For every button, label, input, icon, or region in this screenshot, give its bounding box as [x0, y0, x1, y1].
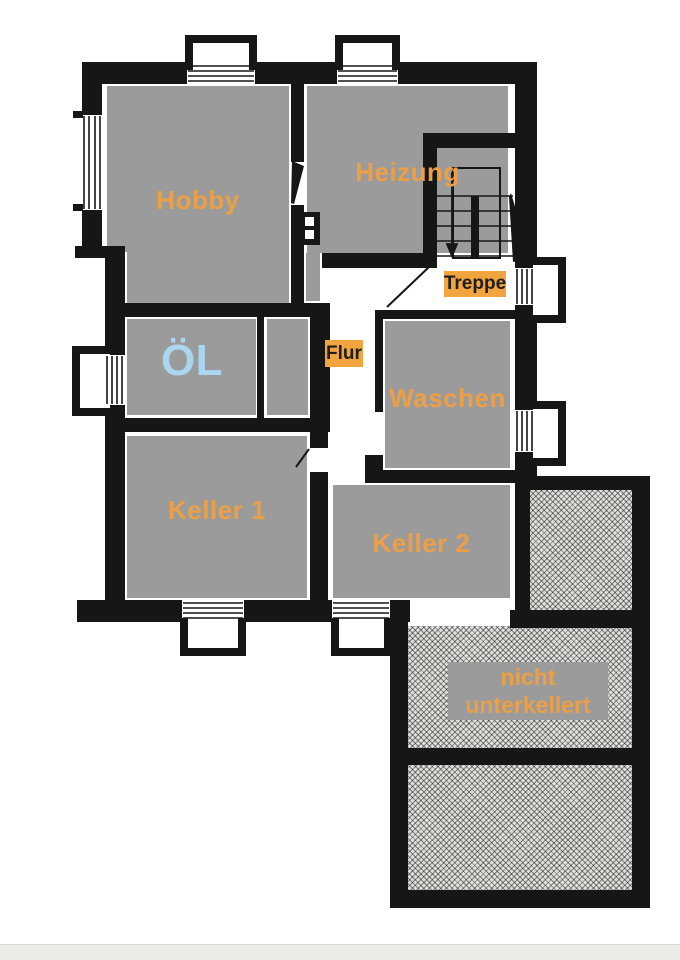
wall-waschen-bottom [380, 470, 530, 483]
wall-hobby-heizung-1 [291, 84, 304, 162]
hatch-area-bottom [408, 765, 632, 890]
window-bay-bottom-2 [331, 618, 392, 656]
window-glazing-bottom-2 [333, 603, 389, 618]
wall-oel-keller1 [105, 418, 330, 432]
scan-footer-bar [0, 944, 680, 960]
wall-tick-2 [73, 204, 83, 211]
window-bay-top-1 [185, 35, 257, 70]
room-hobby [107, 86, 289, 252]
window-glazing-left-hobby [84, 116, 100, 209]
wall-top-2 [255, 62, 337, 84]
room-hobby-lower [127, 250, 289, 303]
room-heizung-door-strip [306, 253, 320, 301]
wall-hatch-divider-2 [390, 748, 650, 765]
wall-left-upper-1 [82, 62, 102, 115]
wall-stairwell-top [423, 133, 515, 148]
wall-oel-divider [257, 317, 264, 418]
room-label-oel: ÖL [127, 336, 257, 386]
wall-oel-right [310, 303, 330, 432]
window-glazing-right-1 [517, 269, 532, 304]
wall-keller2-jog [365, 455, 380, 483]
window-bay-top-2 [335, 35, 400, 70]
window-bay-left [72, 346, 110, 416]
hatch-area-top-square [530, 490, 632, 610]
nicht-unterkellert-text: nicht unterkellert [463, 663, 593, 719]
wall-heizung-bottom [322, 253, 437, 268]
wall-building-right-lower [515, 480, 530, 626]
wall-waschen-left-1 [375, 310, 383, 412]
chimney-flue-1 [305, 217, 314, 226]
room-label-waschen: Waschen [385, 383, 510, 414]
wall-oel-top [105, 303, 330, 317]
wall-tick-1 [73, 111, 83, 118]
wall-keller1-right-1 [310, 432, 328, 448]
room-label-keller-2: Keller 2 [333, 528, 510, 559]
wall-right-1 [515, 62, 537, 268]
wall-stairwell-left [423, 133, 437, 268]
wall-hatch-top [515, 476, 650, 490]
floor-plan-canvas: Hobby Heizung ÖL Waschen Keller 1 Keller… [0, 0, 680, 960]
wall-keller1-right-2 [310, 472, 328, 622]
chimney-flue-2 [305, 230, 314, 239]
room-label-hobby: Hobby [107, 185, 289, 216]
wall-left-lower-2 [105, 405, 125, 622]
window-bay-right-1 [533, 257, 566, 323]
room-label-keller-1: Keller 1 [127, 495, 307, 526]
wall-hatch-divider-1 [510, 610, 650, 628]
wall-bottom-1 [77, 600, 182, 622]
room-small-store [267, 319, 308, 415]
window-bay-bottom-1 [180, 618, 246, 656]
flur-tag: Flur [325, 340, 363, 367]
window-glazing-bottom-1 [183, 603, 243, 618]
window-bay-right-2 [533, 401, 566, 466]
wall-waschen-top [383, 310, 515, 319]
window-glazing-right-2 [517, 411, 532, 451]
door-leaf-flur-treppe [387, 267, 429, 307]
wall-hatch-bottom [390, 890, 650, 908]
treppe-tag: Treppe [444, 271, 506, 297]
room-label-heizung: Heizung [307, 157, 508, 188]
wall-hatch-right [632, 476, 650, 908]
nicht-unterkellert-note: nicht unterkellert [448, 662, 608, 720]
door-leaf-hobby-heizung [291, 161, 304, 204]
